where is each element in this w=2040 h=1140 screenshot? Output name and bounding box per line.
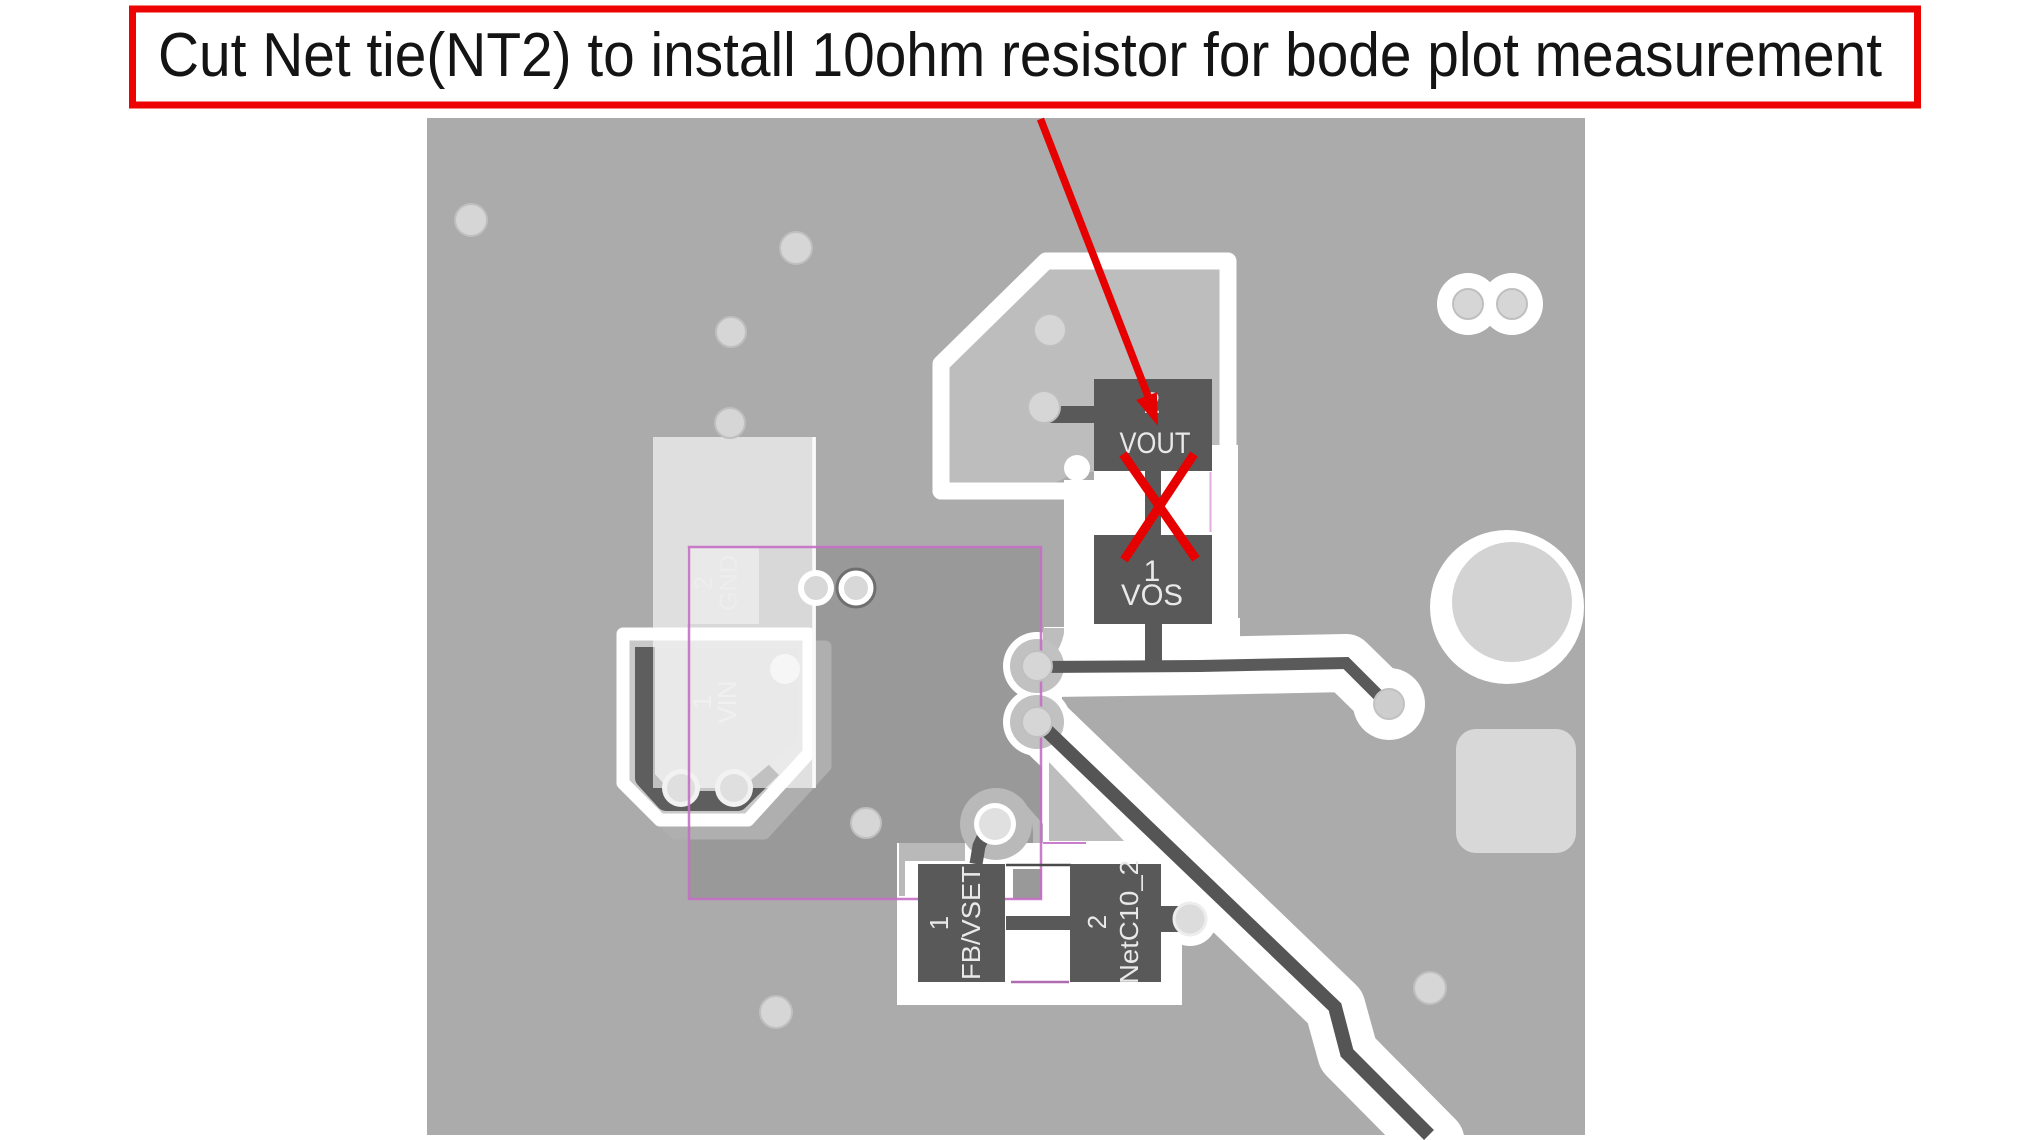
svg-text:VOS: VOS xyxy=(1121,579,1183,612)
svg-text:VIN: VIN xyxy=(712,680,742,723)
svg-text:FB/VSET: FB/VSET xyxy=(956,866,986,980)
svg-text:2: 2 xyxy=(1082,915,1112,929)
svg-text:NetC10_2: NetC10_2 xyxy=(1114,860,1144,984)
svg-text:VOUT: VOUT xyxy=(1120,427,1191,460)
svg-text:Cut Net tie(NT2) to install 10: Cut Net tie(NT2) to install 10ohm resist… xyxy=(158,21,1882,90)
svg-text:2: 2 xyxy=(690,576,718,590)
svg-text:1: 1 xyxy=(924,916,954,930)
svg-text:GND: GND xyxy=(715,555,743,611)
